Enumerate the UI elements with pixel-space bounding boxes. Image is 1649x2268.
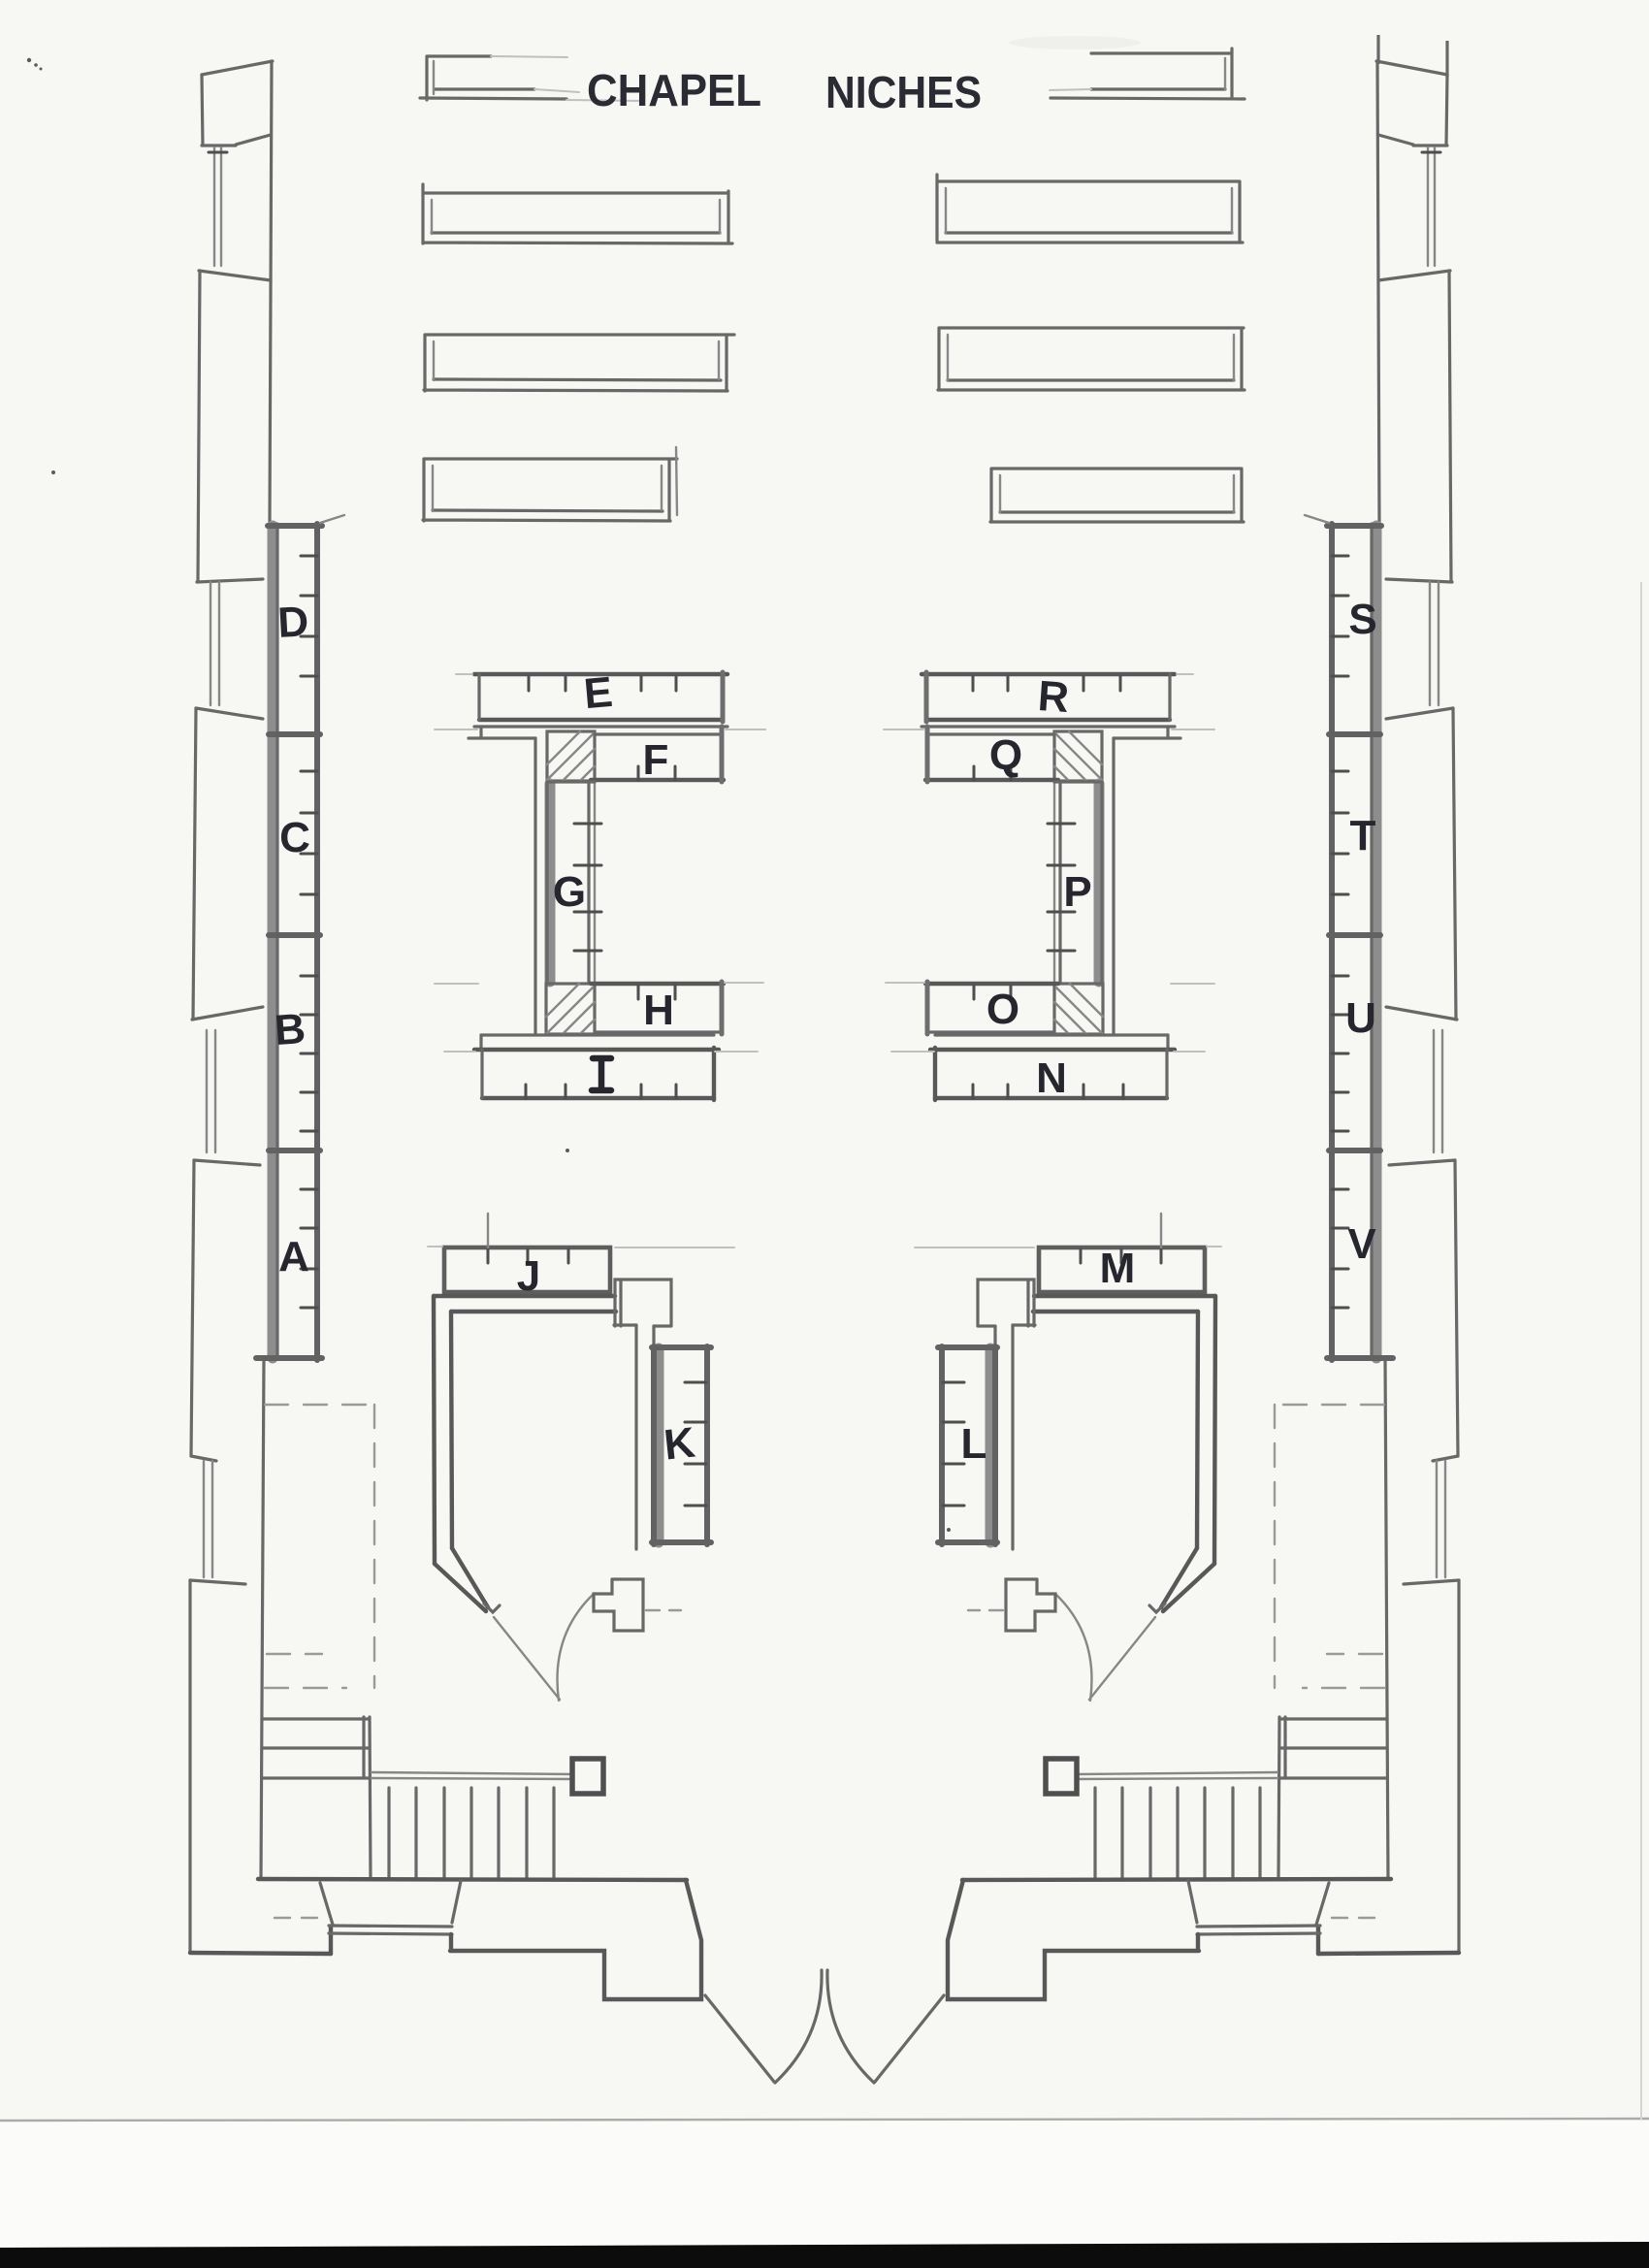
svg-text:L: L bbox=[961, 1420, 987, 1468]
svg-text:CHAPEL: CHAPEL bbox=[587, 65, 761, 115]
svg-text:J: J bbox=[517, 1252, 540, 1300]
svg-text:T: T bbox=[1350, 812, 1376, 859]
svg-text:F: F bbox=[643, 736, 669, 784]
svg-text:C: C bbox=[279, 814, 310, 861]
svg-text:Q: Q bbox=[989, 731, 1022, 779]
svg-text:NICHES: NICHES bbox=[825, 67, 982, 117]
svg-text:N: N bbox=[1036, 1054, 1067, 1102]
svg-text:U: U bbox=[1345, 994, 1376, 1042]
svg-text:H: H bbox=[643, 987, 674, 1034]
svg-text:D: D bbox=[276, 598, 309, 647]
svg-text:V: V bbox=[1347, 1220, 1376, 1268]
svg-text:G: G bbox=[553, 868, 586, 916]
svg-text:A: A bbox=[278, 1233, 309, 1280]
svg-text:S: S bbox=[1348, 596, 1376, 643]
svg-text:O: O bbox=[986, 986, 1019, 1033]
svg-text:P: P bbox=[1063, 868, 1091, 916]
svg-text:K: K bbox=[662, 1419, 697, 1470]
svg-text:R: R bbox=[1036, 672, 1070, 722]
svg-text:E: E bbox=[582, 668, 615, 718]
svg-text:M: M bbox=[1100, 1245, 1136, 1292]
svg-text:B: B bbox=[273, 1005, 307, 1054]
